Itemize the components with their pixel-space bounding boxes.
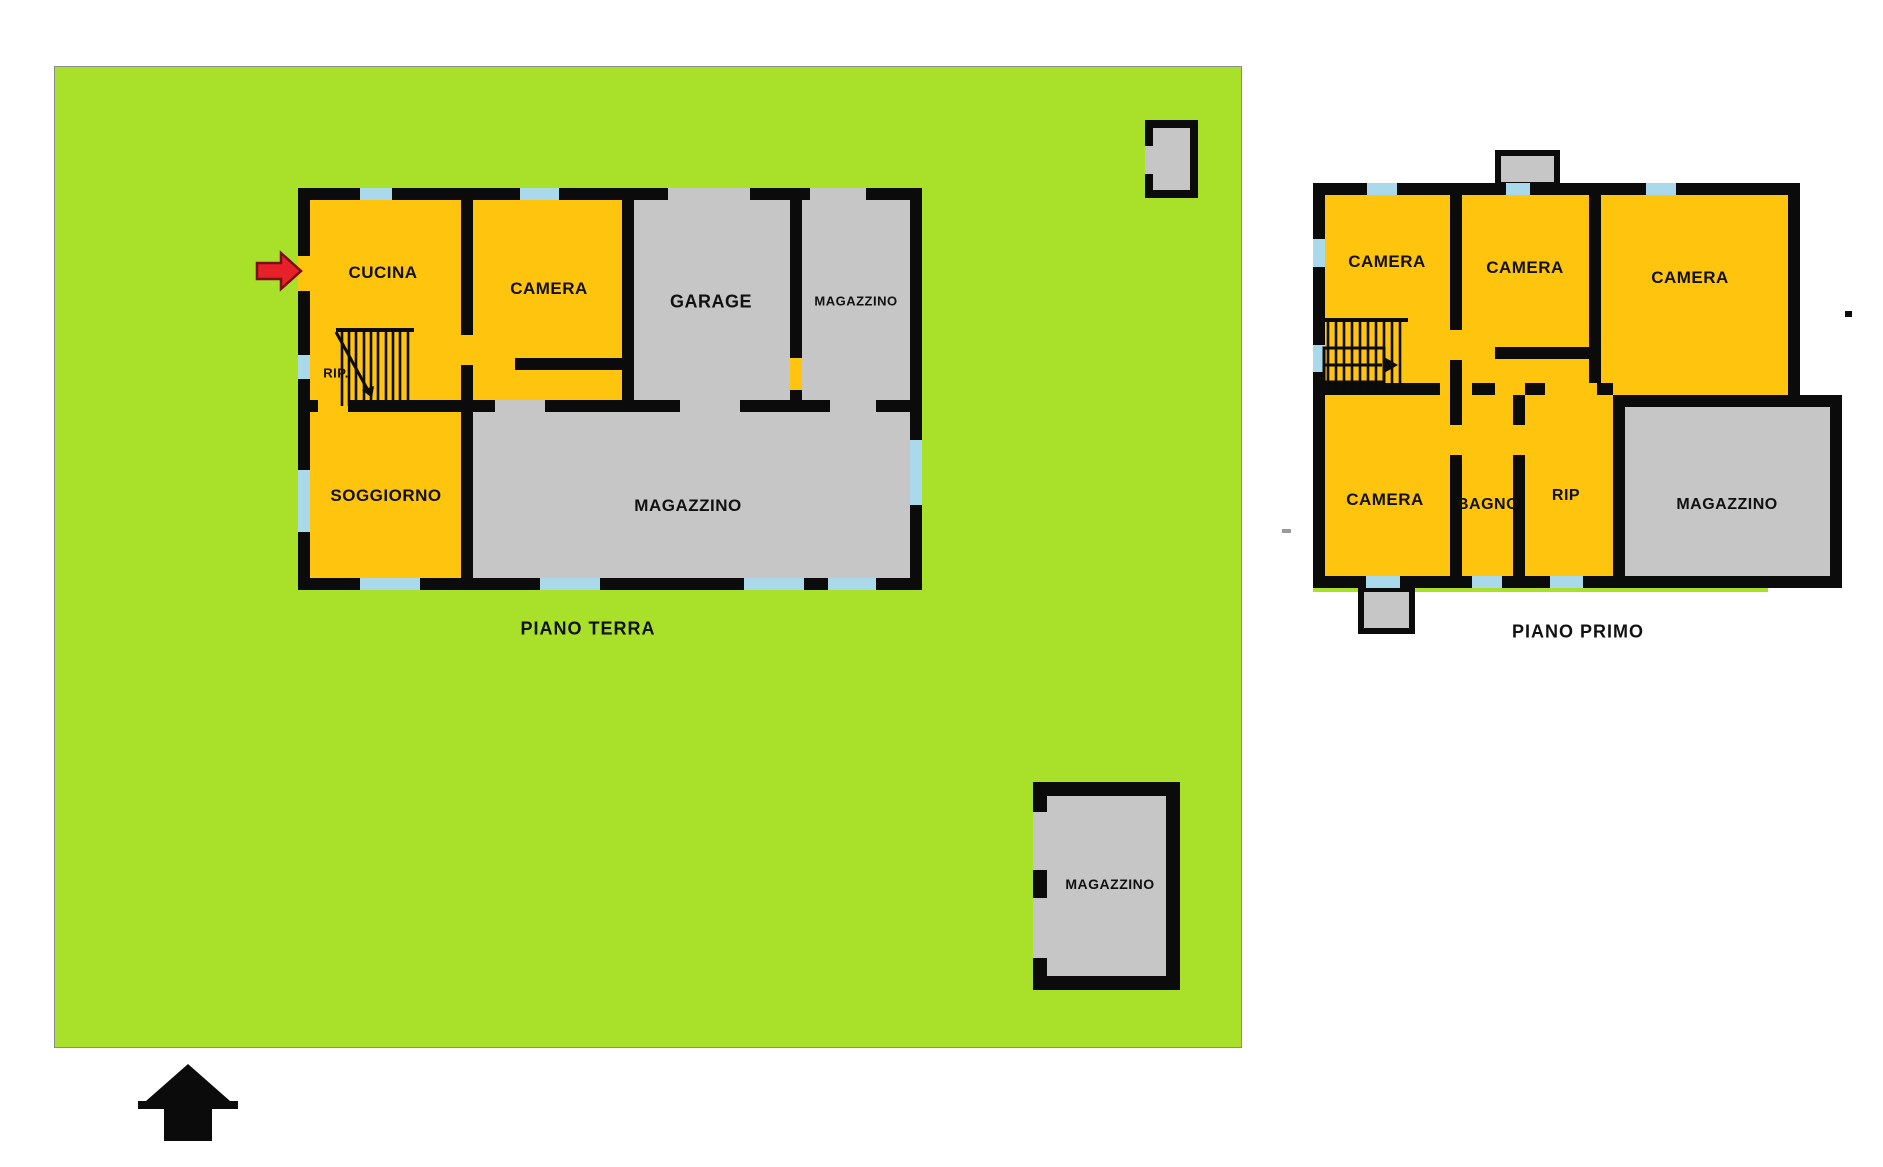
ff-wall-camera2-camera3 [1589,195,1601,347]
ff-magazzino-wall-bottom [1800,576,1842,588]
room-label-garage: GARAGE [670,292,752,313]
small-outbuilding-interior [1153,128,1190,190]
room-label-magazzino-main: MAGAZZINO [634,496,741,516]
gf-wall-mid-c [545,400,680,412]
gf-window-bottom-2 [540,578,600,590]
ff-magazzino-wall-right [1830,395,1842,588]
ff-wall-mid-b [1472,383,1495,395]
gf-wall-camera-bottom [515,358,634,370]
ff-window-bottom-1 [1366,576,1400,588]
outbuilding-door-opening-2 [1033,898,1047,958]
stray-mark [1282,529,1291,533]
ff-window-bottom-2 [1472,576,1502,588]
room-label-cucina: CUCINA [348,263,417,283]
small-outbuilding-door-opening [1145,146,1153,174]
floor-plan-canvas: CUCINA CAMERA GARAGE MAGAZZINO RIP. SOGG… [0,0,1883,1167]
ff-chimney-interior [1501,156,1554,182]
ff-wall-mid-d [1597,383,1613,395]
gf-window-top-cucina [360,188,392,200]
gf-opening-garage [680,400,740,412]
gf-magazzino-main-floor [473,412,910,578]
gf-window-bottom-4 [828,578,876,590]
room-label-camera-sw: CAMERA [1346,490,1424,510]
ff-window-left-1 [1313,239,1325,267]
room-label-magazzino-outbuilding: MAGAZZINO [1065,876,1154,892]
gf-window-bottom-1 [360,578,420,590]
gf-garage-door-opening [668,188,750,200]
ff-wall-camera1-camera2-upper [1450,195,1462,330]
gf-window-left-rip [298,355,310,379]
ff-wall-camera-bagno-lower [1450,455,1462,576]
ff-window-top-2 [1506,183,1530,195]
ff-magazzino-floor [1625,407,1830,576]
gf-window-left-soggiorno [298,470,310,532]
room-label-bagno: BAGNO [1457,496,1519,514]
ff-wall-camera1-camera2-lower [1450,360,1462,395]
stairs-icon [1320,318,1410,396]
gf-opening-magazzino [830,400,876,412]
outbuilding-door-opening-1 [1033,812,1047,870]
room-label-rip-ff: RIP [1552,487,1580,505]
ff-wall-bagno-rip-upper [1513,395,1525,425]
stray-mark [1845,311,1852,317]
gf-window-bottom-3 [744,578,804,590]
ff-window-top-1 [1367,183,1397,195]
ff-stairs [1320,318,1410,396]
first-floor-title: PIANO PRIMO [1512,622,1644,643]
ff-wall-camera2-bottom [1495,347,1601,359]
ff-wall-camera-bagno-upper [1450,395,1462,425]
gf-wall-right [910,188,922,590]
gf-window-top-camera [520,188,559,200]
gf-magazzino-door-opening [810,188,866,200]
gf-wall-mid-e [876,400,910,412]
gf-wall-soggiorno-magazzino [461,412,473,578]
ff-wall-stub [1589,355,1601,383]
north-arrow [138,1064,238,1141]
room-label-rip-gf: RIP. [323,366,349,381]
gf-wall-camera-garage [622,200,634,412]
entrance-arrow-icon [255,250,303,292]
ff-balcony-interior [1364,592,1409,628]
gf-wall-mid-d [740,400,830,412]
gf-wall-cucina-camera-upper [461,200,473,335]
room-label-magazzino-top: MAGAZZINO [814,294,897,309]
ff-magazzino-wall-top [1613,395,1842,407]
gf-window-right-magazzino [910,440,922,505]
entrance-arrow [255,250,303,292]
room-label-camera-ne: CAMERA [1651,268,1729,288]
ff-wall-mid-c [1525,383,1545,395]
gf-wall-mid-a [310,400,318,412]
ff-window-top-3 [1646,183,1676,195]
ground-floor-title: PIANO TERRA [520,619,655,640]
room-label-magazzino-ff: MAGAZZINO [1676,496,1777,514]
room-label-camera-nw: CAMERA [1348,252,1426,272]
gf-opening-corridor [495,400,545,412]
room-label-camera-n: CAMERA [1486,258,1564,278]
ff-wall-bagno-rip-lower [1513,455,1525,576]
room-label-soggiorno: SOGGIORNO [330,486,441,506]
north-arrow-icon [138,1064,238,1141]
room-label-camera-gf: CAMERA [510,279,588,299]
ff-window-bottom-3 [1550,576,1583,588]
gf-wall-garage-magazzino-upper [790,200,802,358]
ff-magazzino-wall-left [1613,395,1625,576]
